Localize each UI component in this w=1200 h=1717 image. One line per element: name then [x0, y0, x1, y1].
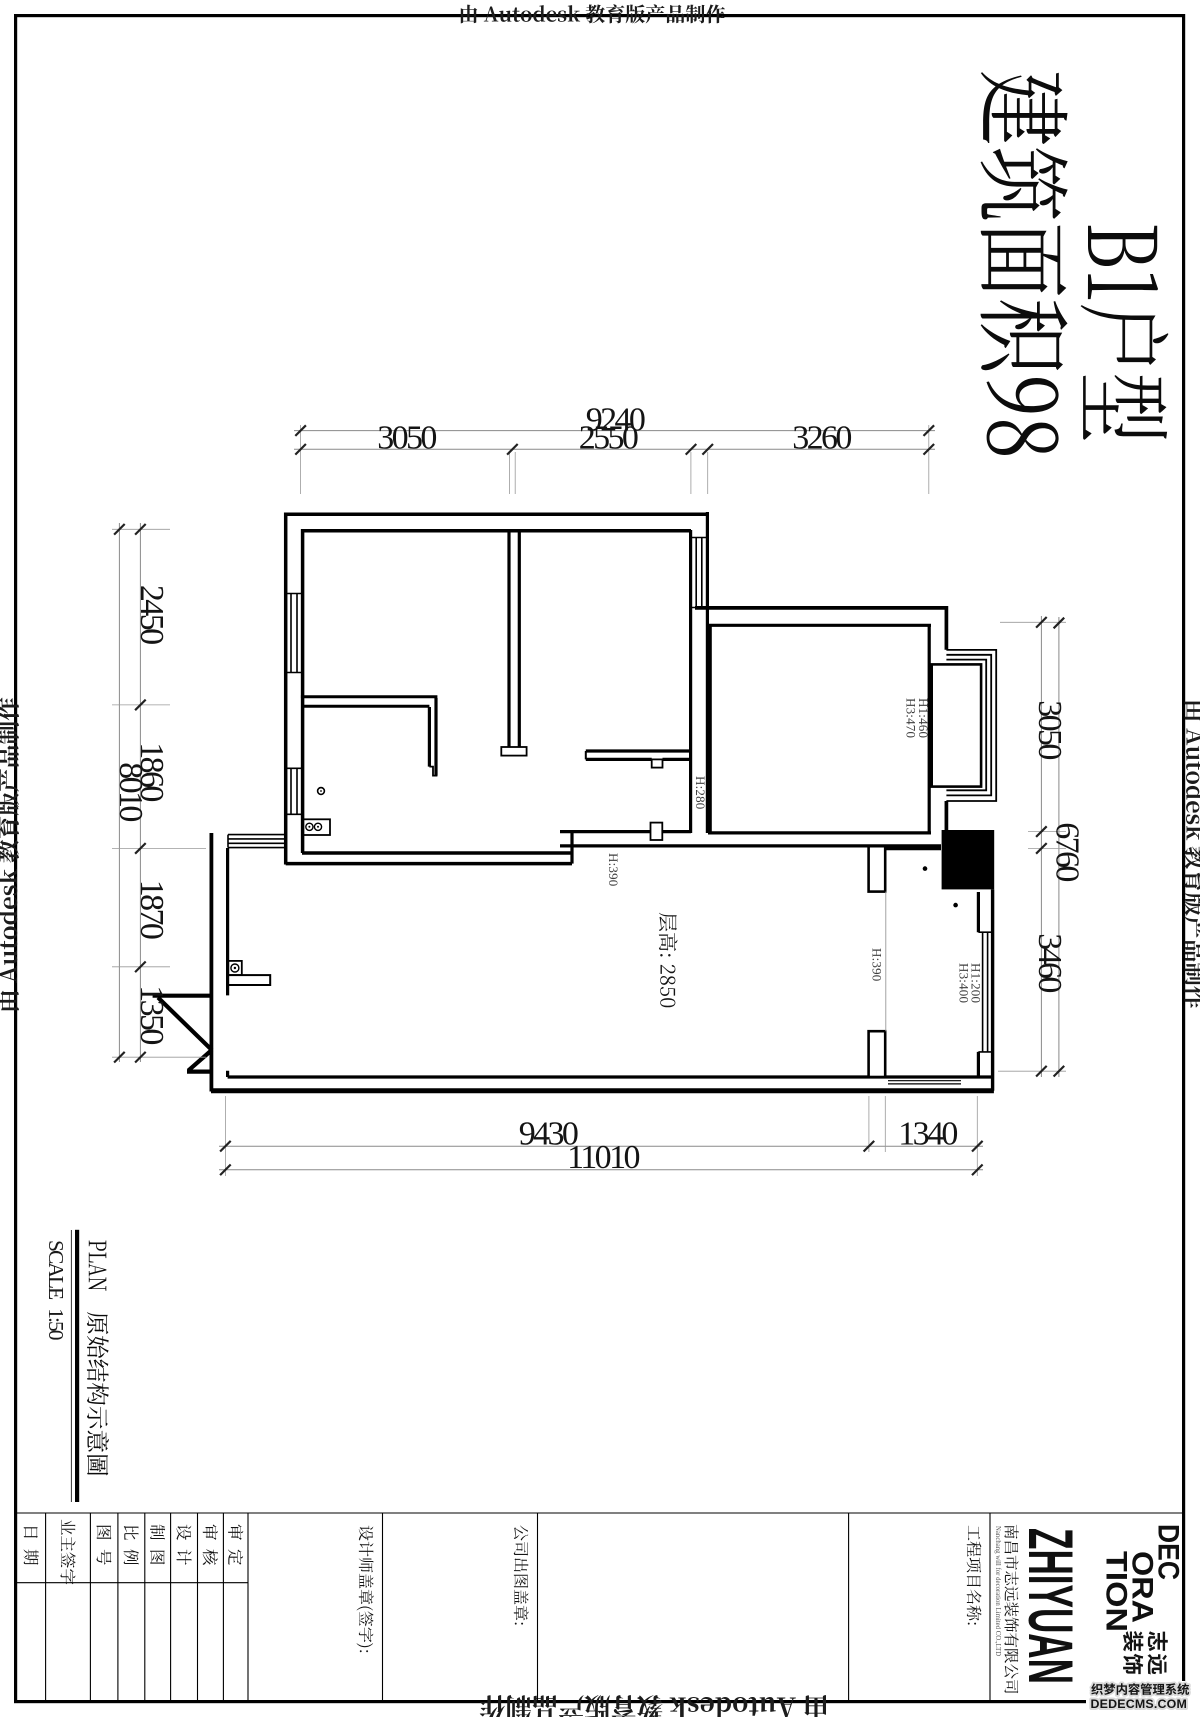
svg-text:H:390: H:390 — [870, 948, 885, 982]
svg-text:1870: 1870 — [133, 880, 170, 939]
svg-text:2450: 2450 — [133, 585, 170, 644]
svg-text:3050: 3050 — [1031, 700, 1068, 759]
svg-text:H:390: H:390 — [606, 853, 621, 887]
svg-text:TION: TION — [1100, 1551, 1133, 1632]
svg-text:1340: 1340 — [898, 1116, 957, 1153]
svg-text:DEDECMS.COM: DEDECMS.COM — [1091, 1697, 1188, 1711]
svg-text:H:280: H:280 — [693, 776, 708, 810]
svg-text:3050: 3050 — [377, 419, 436, 456]
svg-text:3460: 3460 — [1031, 933, 1068, 992]
svg-text:3260: 3260 — [792, 419, 851, 456]
svg-text:6760: 6760 — [1049, 822, 1086, 881]
svg-text:Nanchang will for decoration L: Nanchang will for decoration Limited CO.… — [994, 1526, 1001, 1656]
svg-text:11010: 11010 — [567, 1139, 639, 1176]
svg-text:2550: 2550 — [579, 419, 638, 456]
svg-text:H1:460: H1:460 — [916, 698, 931, 738]
svg-text:8010: 8010 — [112, 762, 149, 821]
svg-text:1350: 1350 — [133, 985, 170, 1044]
svg-text:SCALE 1:50: SCALE 1:50 — [44, 1240, 68, 1340]
svg-text:H1:200: H1:200 — [969, 963, 984, 1003]
svg-text:ZHIYUAN: ZHIYUAN — [1015, 1528, 1085, 1684]
